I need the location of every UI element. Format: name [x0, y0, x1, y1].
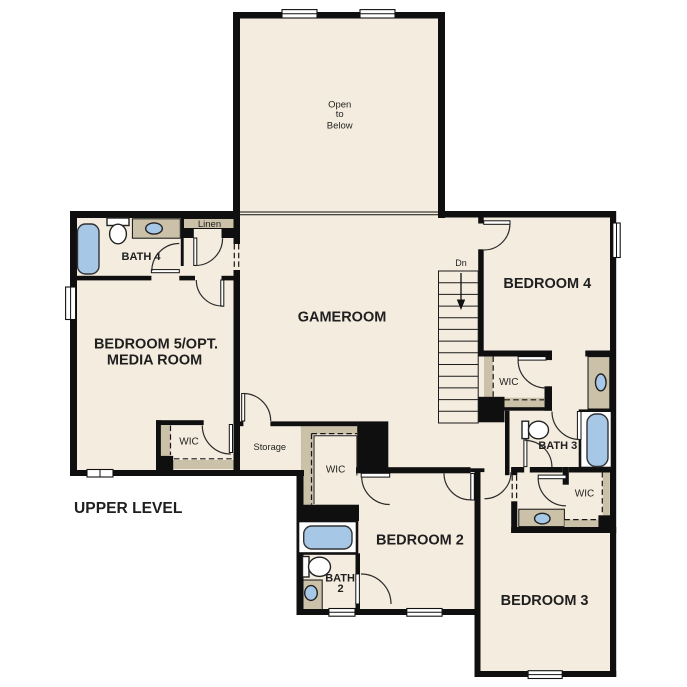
svg-text:WIC: WIC — [179, 437, 198, 448]
svg-text:BEDROOM 4: BEDROOM 4 — [503, 276, 591, 292]
svg-text:WIC: WIC — [326, 464, 345, 475]
svg-text:to: to — [336, 109, 344, 120]
svg-text:2: 2 — [338, 583, 344, 595]
svg-text:BEDROOM 2: BEDROOM 2 — [376, 532, 464, 548]
svg-text:Storage: Storage — [254, 442, 287, 452]
svg-text:Below: Below — [327, 121, 353, 132]
svg-text:WIC: WIC — [499, 377, 518, 388]
svg-text:BATH 4: BATH 4 — [122, 251, 162, 263]
svg-text:WIC: WIC — [575, 489, 594, 500]
svg-text:BEDROOM 3: BEDROOM 3 — [501, 593, 589, 609]
svg-text:GAMEROOM: GAMEROOM — [298, 310, 387, 326]
svg-text:Linen: Linen — [198, 219, 221, 230]
svg-text:BATH 3: BATH 3 — [538, 440, 577, 452]
svg-text:BEDROOM 5/OPT.: BEDROOM 5/OPT. — [94, 336, 218, 352]
svg-text:MEDIA ROOM: MEDIA ROOM — [107, 352, 202, 368]
svg-text:UPPER LEVEL: UPPER LEVEL — [74, 500, 183, 517]
svg-text:Dn: Dn — [455, 258, 467, 268]
